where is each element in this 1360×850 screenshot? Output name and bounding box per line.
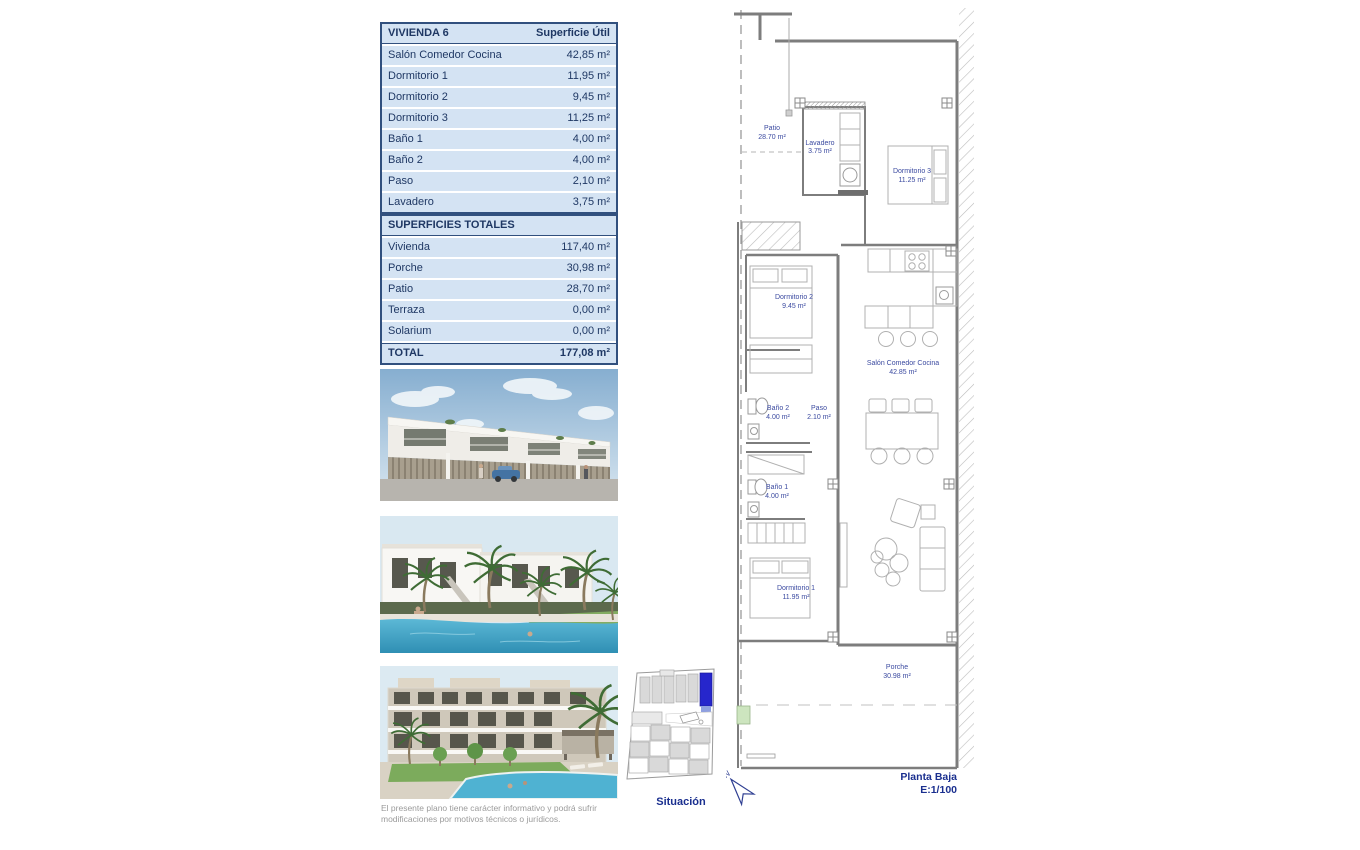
table-row: Dormitorio 1 11,95 m² xyxy=(382,67,616,86)
svg-text:N: N xyxy=(726,769,732,780)
grand-total-label: TOTAL xyxy=(388,347,424,360)
svg-text:30.98 m²: 30.98 m² xyxy=(883,673,911,680)
total-label: Solarium xyxy=(388,325,431,338)
situacion-highlight-unit xyxy=(700,673,712,706)
room-label-salon: Salón Comedor Cocina xyxy=(867,360,939,367)
grand-total-area: 177,08 m² xyxy=(560,347,610,360)
basin-icon xyxy=(751,506,758,513)
door-sill xyxy=(838,190,868,195)
situacion-block: Situación xyxy=(624,664,722,808)
table-header-row: VIVIENDA 6 Superficie Útil xyxy=(382,24,616,44)
table-row: Salón Comedor Cocina 42,85 m² xyxy=(382,46,616,65)
situacion-map xyxy=(624,664,722,790)
total-area: 117,40 m² xyxy=(561,241,610,254)
disclaimer-text: El presente plano tiene carácter informa… xyxy=(381,803,629,825)
table-row: Dormitorio 3 11,25 m² xyxy=(382,109,616,128)
svg-text:9.45 m²: 9.45 m² xyxy=(782,303,806,310)
svg-text:11.25 m²: 11.25 m² xyxy=(898,177,926,184)
salon-furniture xyxy=(840,498,945,591)
room-label: Lavadero xyxy=(388,196,434,209)
room-label: Dormitorio 1 xyxy=(388,70,448,83)
room-area: 2,10 m² xyxy=(573,175,610,188)
floor-plan: Patio 28.70 m² Lavadero 3.75 m² Dormitor… xyxy=(726,0,980,810)
planter xyxy=(737,706,750,724)
room-label: Dormitorio 2 xyxy=(388,91,448,104)
room-area: 4,00 m² xyxy=(573,133,610,146)
table-row: Baño 1 4,00 m² xyxy=(382,130,616,149)
table-row: Paso 2,10 m² xyxy=(382,172,616,191)
room-area: 11,25 m² xyxy=(567,112,610,125)
dining-set xyxy=(866,399,938,464)
table-row: Dormitorio 2 9,45 m² xyxy=(382,88,616,107)
table-row: Porche 30,98 m² xyxy=(382,259,616,278)
street xyxy=(380,479,618,501)
basin-icon xyxy=(751,428,758,435)
pool xyxy=(380,619,618,653)
table-row: Baño 2 4,00 m² xyxy=(382,151,616,170)
plan-caption-scale: E:1/100 xyxy=(920,784,957,796)
svg-text:28.70 m²: 28.70 m² xyxy=(758,134,786,141)
dormitorio1-furniture xyxy=(748,523,810,618)
table-row: Solarium 0,00 m² xyxy=(382,322,616,341)
room-area: 9,45 m² xyxy=(573,91,610,104)
vivienda-table: VIVIENDA 6 Superficie Útil Salón Comedor… xyxy=(380,22,618,214)
situacion-label: Situación xyxy=(624,796,722,808)
svg-text:4.00 m²: 4.00 m² xyxy=(765,493,789,500)
svg-text:4.00 m²: 4.00 m² xyxy=(766,414,790,421)
tv-unit xyxy=(840,523,847,587)
table-col-header: Superficie Útil xyxy=(536,27,610,40)
plan-sheet: VIVIENDA 6 Superficie Útil Salón Comedor… xyxy=(0,0,1360,850)
entrance-ramp xyxy=(742,222,800,250)
room-area: 42,85 m² xyxy=(567,49,610,62)
total-area: 30,98 m² xyxy=(567,262,610,275)
total-label: Terraza xyxy=(388,304,425,317)
render-photo-pool xyxy=(380,516,618,653)
total-area: 0,00 m² xyxy=(573,304,610,317)
hob-icon xyxy=(905,251,929,271)
sofa xyxy=(920,527,945,591)
dormitorio3-furniture xyxy=(888,146,948,204)
svg-text:42.85 m²: 42.85 m² xyxy=(889,369,917,376)
room-label: Salón Comedor Cocina xyxy=(388,49,502,62)
room-area: 11,95 m² xyxy=(567,70,610,83)
room-label-patio: Patio xyxy=(764,125,780,132)
post xyxy=(786,110,792,116)
total-label: Vivienda xyxy=(388,241,430,254)
room-label-dormitorio1: Dormitorio 1 xyxy=(777,585,815,592)
total-area: 0,00 m² xyxy=(573,325,610,338)
table-row: Terraza 0,00 m² xyxy=(382,301,616,320)
room-area: 4,00 m² xyxy=(573,154,610,167)
room-label: Dormitorio 3 xyxy=(388,112,448,125)
room-label: Baño 1 xyxy=(388,133,423,146)
room-label-dormitorio3: Dormitorio 3 xyxy=(893,168,931,175)
table-row: Lavadero 3,75 m² xyxy=(382,193,616,212)
room-label: Baño 2 xyxy=(388,154,423,167)
room-label-porche: Porche xyxy=(886,664,908,671)
table-header-row: SUPERFICIES TOTALES xyxy=(382,216,616,236)
plan-caption-title: Planta Baja xyxy=(900,771,957,783)
render-photo-exterior xyxy=(380,369,618,501)
table-title: VIVIENDA 6 xyxy=(388,27,449,40)
svg-text:2.10 m²: 2.10 m² xyxy=(807,414,831,421)
party-wall-hatch xyxy=(959,8,974,768)
svg-text:11.95 m²: 11.95 m² xyxy=(782,594,810,601)
totales-table: SUPERFICIES TOTALES Vivienda 117,40 m² P… xyxy=(380,214,618,365)
svg-text:3.75 m²: 3.75 m² xyxy=(808,148,832,155)
highlight-porch xyxy=(701,706,711,712)
bench xyxy=(747,754,775,758)
room-label-paso: Paso xyxy=(811,405,827,412)
total-area: 28,70 m² xyxy=(567,283,610,296)
room-label-bano1: Baño 1 xyxy=(766,484,788,491)
room-label-dormitorio2: Dormitorio 2 xyxy=(775,294,813,301)
dormitorio2-furniture xyxy=(750,266,812,373)
total-label: Patio xyxy=(388,283,413,296)
table-row: Vivienda 117,40 m² xyxy=(382,238,616,257)
apartment-buildings xyxy=(382,544,592,606)
room-label-lavadero: Lavadero xyxy=(805,140,834,147)
bano2-fixtures xyxy=(748,398,768,439)
table-total-row: TOTAL 177,08 m² xyxy=(382,343,616,363)
north-arrow-icon: N xyxy=(726,766,754,805)
pool xyxy=(450,772,618,799)
render-photo-apartments xyxy=(380,666,618,799)
kitchen-furniture xyxy=(865,249,957,347)
table-title: SUPERFICIES TOTALES xyxy=(388,219,515,232)
total-label: Porche xyxy=(388,262,423,275)
room-label-bano2: Baño 2 xyxy=(767,405,789,412)
room-area: 3,75 m² xyxy=(573,196,610,209)
room-label: Paso xyxy=(388,175,413,188)
table-row: Patio 28,70 m² xyxy=(382,280,616,299)
